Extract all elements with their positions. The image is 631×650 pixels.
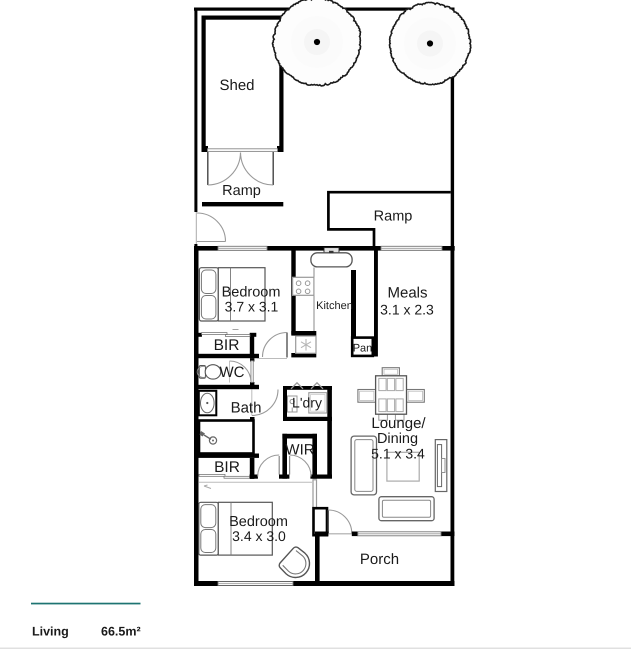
svg-text:Shed: Shed [219, 77, 254, 94]
svg-text:3.4 x 3.0: 3.4 x 3.0 [232, 528, 286, 544]
svg-text:BIR: BIR [214, 337, 240, 354]
svg-text:Pan: Pan [353, 343, 373, 355]
svg-text:WIR: WIR [285, 442, 314, 459]
svg-text:Ramp: Ramp [374, 209, 413, 225]
svg-text:Kitchen: Kitchen [316, 300, 353, 312]
svg-text:66.5m²: 66.5m² [101, 625, 141, 639]
svg-text:Ramp: Ramp [222, 183, 261, 199]
svg-text:Living: Living [32, 625, 69, 639]
svg-text:BIR: BIR [214, 459, 240, 476]
svg-text:5.1 x 3.4: 5.1 x 3.4 [371, 446, 425, 462]
svg-text:3.1 x 2.3: 3.1 x 2.3 [380, 302, 434, 318]
svg-text:Porch: Porch [360, 551, 399, 568]
svg-text:L'dry: L'dry [292, 395, 322, 411]
svg-text:3.7 x 3.1: 3.7 x 3.1 [225, 299, 279, 315]
svg-text:Lounge/: Lounge/ [371, 415, 426, 432]
svg-text:Bath: Bath [231, 400, 262, 417]
svg-text:Meals: Meals [387, 285, 427, 302]
svg-text:WC: WC [220, 364, 245, 381]
